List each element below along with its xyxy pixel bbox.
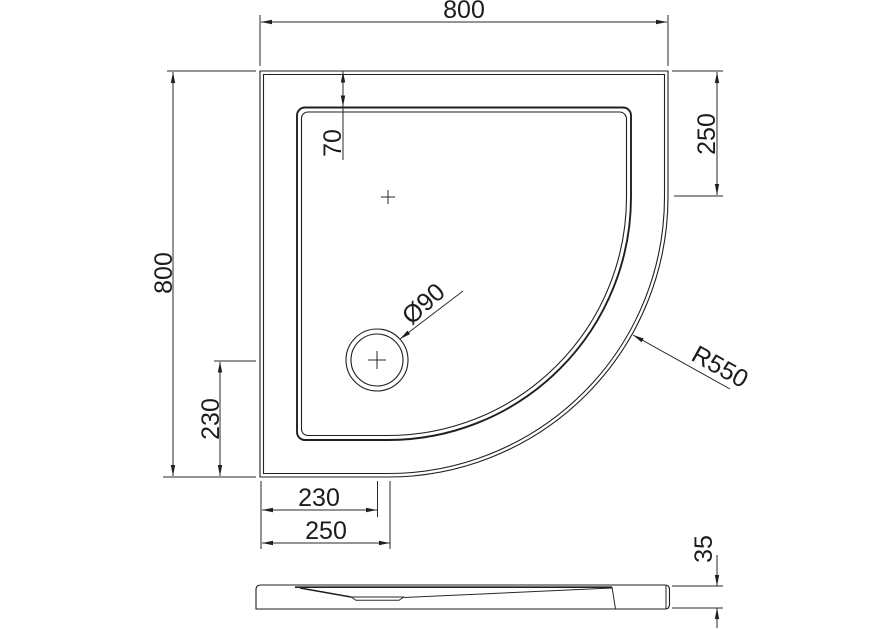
arrowhead — [633, 335, 644, 342]
arrowhead — [341, 96, 345, 107]
dim-right-straight-edge-label: 250 — [693, 113, 721, 155]
arrowhead — [656, 20, 667, 24]
tray-rim-inner-line — [302, 112, 627, 436]
drawing-sheet: 800 800 250 70 — [0, 0, 891, 629]
dim-overall-width: 800 — [260, 0, 668, 66]
profile-floor-slope-left — [300, 588, 351, 597]
arrowhead — [715, 575, 719, 586]
arrowhead — [218, 465, 222, 476]
dim-drain-offset-vertical-label: 230 — [197, 398, 225, 440]
drain-center-mark-icon — [368, 351, 386, 369]
dim-corner-radius: R550 — [633, 335, 753, 394]
dim-right-straight-edge: 250 — [672, 71, 723, 196]
arrowhead — [218, 362, 222, 373]
arrowhead — [171, 72, 175, 83]
dim-tray-height-label: 35 — [690, 535, 718, 563]
profile-curve-edge-line — [612, 587, 616, 609]
dim-corner-radius-label: R550 — [687, 340, 753, 393]
dim-drain-offset-horizontal-label: 230 — [298, 484, 340, 512]
dim-rim-width: 70 — [319, 71, 347, 160]
profile-view — [256, 585, 670, 609]
arrowhead — [341, 72, 345, 83]
dim-drain-offset-vertical: 230 — [197, 361, 256, 476]
arrowhead — [379, 541, 390, 545]
dim-curve-start-offset-label: 250 — [305, 517, 347, 545]
technical-drawing-canvas: 800 800 250 70 — [0, 0, 891, 629]
dim-overall-depth-label: 800 — [150, 252, 178, 294]
dim-drain-diameter: Ø90 — [397, 278, 463, 339]
arrowhead — [171, 465, 175, 476]
tray-rim-outline — [297, 108, 631, 441]
dim-overall-width-label: 800 — [443, 0, 485, 24]
arrowhead — [715, 72, 719, 83]
profile-floor-slope-right — [404, 588, 612, 598]
arc-center-mark-icon — [381, 190, 395, 204]
arrowhead — [715, 184, 719, 195]
dim-tray-height: 35 — [672, 535, 723, 628]
dim-rim-width-label: 70 — [319, 129, 347, 157]
arrowhead — [261, 20, 272, 24]
dim-drain-diameter-label: Ø90 — [397, 278, 451, 330]
arrowhead — [715, 608, 719, 619]
arrowhead — [262, 541, 273, 545]
arrowhead — [366, 508, 377, 512]
arrowhead — [262, 508, 273, 512]
